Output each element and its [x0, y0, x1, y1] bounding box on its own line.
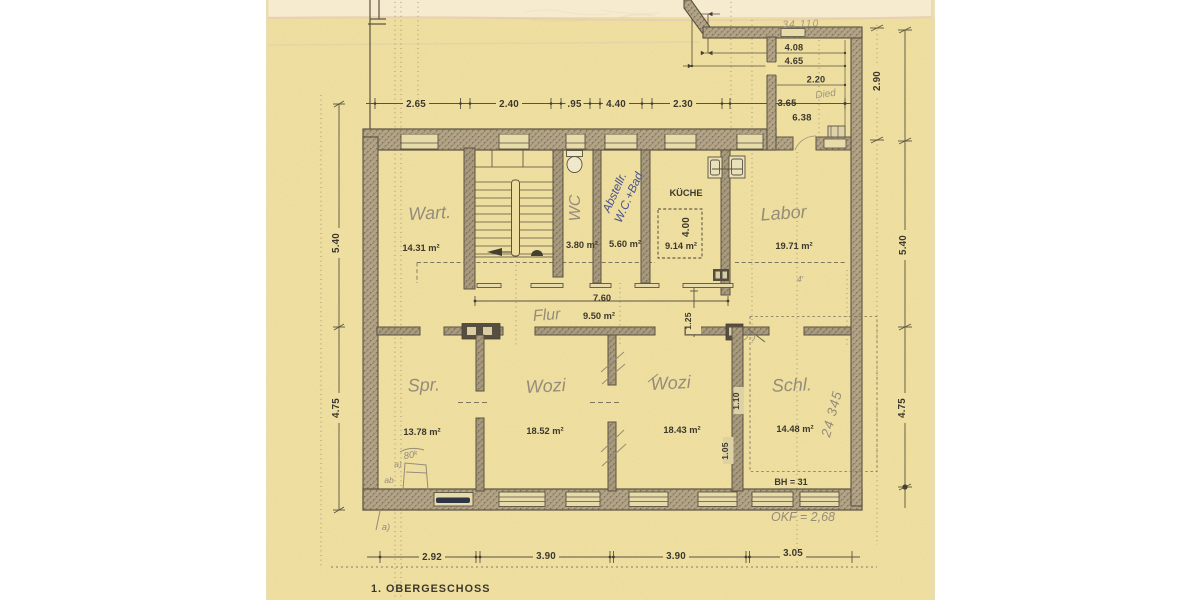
svg-text:a): a) — [394, 459, 402, 469]
svg-text:3.90: 3.90 — [536, 551, 556, 562]
svg-text:18.43 m²: 18.43 m² — [663, 425, 700, 435]
svg-text:Wozi: Wozi — [525, 375, 567, 397]
svg-text:9.14 m²: 9.14 m² — [665, 241, 697, 251]
svg-text:1.10: 1.10 — [731, 392, 741, 410]
svg-text:1.05: 1.05 — [720, 442, 730, 460]
svg-text:5.60 m²: 5.60 m² — [609, 239, 641, 249]
svg-text:Wozi: Wozi — [650, 372, 692, 394]
svg-text:3.65: 3.65 — [777, 97, 796, 108]
svg-text:2.92: 2.92 — [422, 552, 442, 563]
svg-text:13.78 m²: 13.78 m² — [403, 427, 440, 437]
svg-text:2.20: 2.20 — [807, 75, 826, 85]
svg-text:1.25: 1.25 — [683, 312, 693, 330]
svg-text:.95: .95 — [567, 99, 582, 110]
svg-text:7.60: 7.60 — [593, 293, 611, 303]
svg-text:BH = 31: BH = 31 — [774, 477, 807, 487]
svg-text:Schl.: Schl. — [771, 374, 812, 395]
svg-text:4.75: 4.75 — [331, 398, 342, 418]
svg-text:4′: 4′ — [797, 274, 804, 284]
svg-text:4.08: 4.08 — [785, 43, 804, 53]
svg-text:3.80 m²: 3.80 m² — [566, 240, 598, 250]
svg-text:4.00: 4.00 — [681, 217, 692, 237]
svg-text:WC: WC — [567, 194, 584, 221]
svg-text:2.90: 2.90 — [872, 71, 883, 91]
svg-text:2.40: 2.40 — [499, 99, 519, 110]
svg-text:5.40: 5.40 — [331, 233, 342, 253]
svg-text:19.71 m²: 19.71 m² — [775, 241, 812, 251]
svg-text:18.52 m²: 18.52 m² — [526, 426, 563, 436]
svg-text:4.40: 4.40 — [606, 99, 626, 110]
svg-text:9.50 m²: 9.50 m² — [583, 311, 615, 321]
svg-text:14.48 m²: 14.48 m² — [776, 424, 813, 434]
svg-text:Flur: Flur — [532, 306, 561, 325]
svg-text:5.40: 5.40 — [898, 235, 909, 255]
svg-text:6.38: 6.38 — [792, 113, 812, 124]
svg-text:34 110: 34 110 — [782, 18, 819, 30]
svg-text:2.65: 2.65 — [406, 99, 426, 110]
svg-text:OKF = 2,68: OKF = 2,68 — [771, 510, 835, 524]
svg-text:Spr.: Spr. — [407, 374, 440, 395]
svg-text:Wart.: Wart. — [408, 202, 452, 224]
svg-text:Labor: Labor — [760, 201, 808, 224]
svg-text:KÜCHE: KÜCHE — [669, 188, 702, 198]
svg-text:2.30: 2.30 — [673, 99, 693, 110]
svg-text:ab: ab — [384, 475, 394, 485]
svg-text:3.90: 3.90 — [666, 551, 686, 562]
svg-text:4.65: 4.65 — [785, 56, 804, 66]
svg-text:4.75: 4.75 — [897, 398, 908, 418]
svg-text:3.05: 3.05 — [783, 548, 803, 559]
svg-text:a): a) — [382, 522, 390, 533]
svg-text:14.31 m²: 14.31 m² — [402, 243, 439, 253]
svg-text:1. OBERGESCHOSS: 1. OBERGESCHOSS — [371, 583, 490, 595]
